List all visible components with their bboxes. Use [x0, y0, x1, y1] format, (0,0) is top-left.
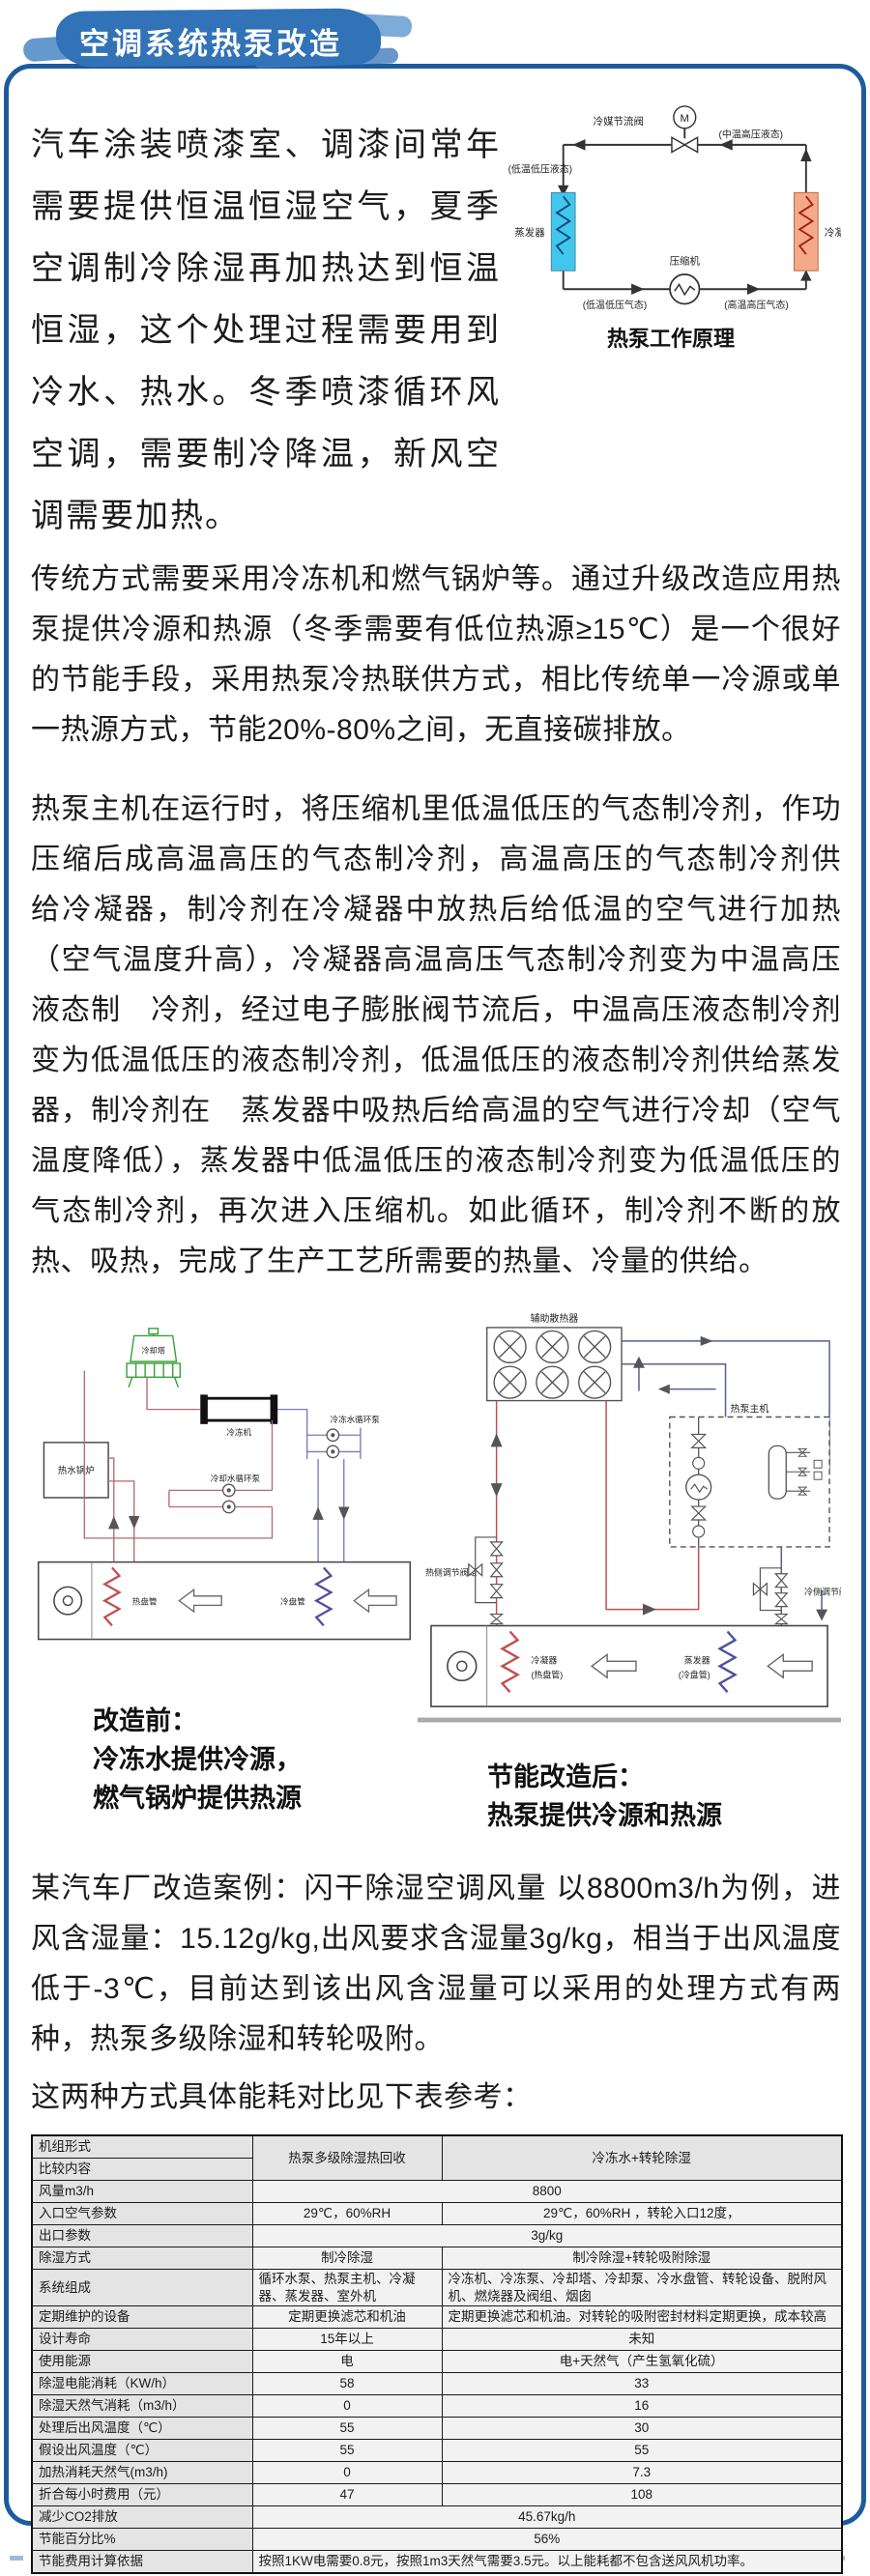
heat-pump-unit-label: 热泵主机: [731, 1403, 769, 1416]
compressor-icon: [670, 274, 699, 303]
before-retrofit-block: 冷却塔 热水锅炉 冷冻机: [31, 1306, 418, 1818]
chilled-pump-label: 冷冻水循环泵: [331, 1414, 381, 1424]
high-gas-label: (高温高压气态): [724, 299, 788, 311]
paragraph-case-study: 某汽车厂改造案例：闪干除湿空调风量 以8800m3/h为例，进风含湿量：15.1…: [31, 1864, 841, 2065]
paragraph-traditional: 传统方式需要采用冷冻机和燃气锅炉等。通过升级改造应用热泵提供冷源和热源（冬季需要…: [31, 555, 841, 756]
paragraph-table-intro: 这两种方式具体能耗对比见下表参考：: [31, 2073, 841, 2123]
before-caption: 改造前： 冷冻水提供冷源， 燃气锅炉提供热源: [93, 1702, 418, 1818]
after-retrofit-diagram: 辅助散热器: [418, 1306, 841, 1739]
chilled-water-pipes: [277, 1410, 361, 1562]
table-row: 入口空气参数29℃，60%RH29℃，60%RH ，转轮入口12度，: [32, 2203, 842, 2225]
compressor-label: 压缩机: [670, 255, 701, 268]
table-row: 出口参数3g/kg: [32, 2225, 842, 2247]
table-row: 系统组成循环水泵、热泵主机、冷凝器、蒸发器、室外机冷冻机、冷冻泵、冷却塔、冷却泵…: [32, 2270, 842, 2306]
header-col2: 冷冻水+转轮除湿: [442, 2135, 842, 2181]
heat-pump-unit-icon: [670, 1417, 829, 1547]
table-row: 除湿方式制冷除湿制冷除湿+转轮吸附除湿: [32, 2247, 842, 2270]
table-row: 加热消耗天然气(m3/h)07.3: [32, 2462, 842, 2484]
table-row: 假设出风温度（℃）5555: [32, 2440, 842, 2462]
heat-pump-principle-diagram: M 冷媒节流阀 (中温高压液态) (低温低压液态) 蒸发器 冷凝器 压缩机 (低…: [501, 100, 841, 317]
cooling-tower-label: 冷却塔: [142, 1346, 165, 1356]
table-row: 定期维护的设备定期更换滤芯和机油定期更换滤芯和机油。对转轮的吸附密封材料定期更换…: [32, 2306, 842, 2329]
cooling-pump-label: 冷却水循环泵: [211, 1473, 261, 1483]
article-content: 汽车涂装喷漆室、调漆间常年需要提供恒温恒湿空气，夏季空调制冷除湿再加热达到恒温恒…: [31, 97, 841, 2574]
flow-arrows: [558, 139, 812, 295]
aux-radiator-label: 辅助散热器: [531, 1312, 579, 1325]
evaporator-coil-label2: (冷盘管): [679, 1669, 710, 1679]
table-row: 节能百分比%56%: [32, 2529, 842, 2551]
table-row: 减少CO2排放45.67kg/h: [32, 2506, 842, 2529]
header-col1: 热泵多级除湿热回收: [252, 2135, 442, 2181]
table-row: 折合每小时费用（元）47108: [32, 2484, 842, 2506]
cold-valve-group-label: 冷侧调节阀组: [804, 1587, 841, 1597]
table-row: 除湿天然气消耗（m3/h）016: [32, 2395, 842, 2418]
low-gas-label: (低温低压气态): [583, 299, 647, 311]
paragraph-intro: 汽车涂装喷漆室、调漆间常年需要提供恒温恒湿空气，夏季空调制冷除湿再加热达到恒温恒…: [31, 114, 501, 547]
paragraph-cycle: 热泵主机在运行时，将压缩机里低温低压的气态制冷剂，作功压缩后成高温高压的气态制冷…: [31, 785, 841, 1287]
table-row: 处理后出风温度（℃）5530: [32, 2418, 842, 2440]
evaporator-icon: [551, 192, 575, 271]
motor-label: M: [681, 113, 690, 125]
evaporator-coil-label1: 蒸发器: [684, 1654, 710, 1665]
table-row: 风量m3/h8800: [32, 2181, 842, 2203]
table-row: 除湿电能消耗（KW/h）5833: [32, 2373, 842, 2395]
condenser-icon: [794, 192, 818, 271]
intro-section: 汽车涂装喷漆室、调漆间常年需要提供恒温恒湿空气，夏季空调制冷除湿再加热达到恒温恒…: [31, 97, 841, 547]
principle-diagram-block: M 冷媒节流阀 (中温高压液态) (低温低压液态) 蒸发器 冷凝器 压缩机 (低…: [501, 97, 841, 547]
pump-icons: [223, 1429, 339, 1513]
principle-diagram-caption: 热泵工作原理: [501, 322, 841, 353]
table-row: 设计寿命15年以上未知: [32, 2329, 842, 2351]
header-compare-content: 比较内容: [32, 2159, 252, 2181]
page-title: 空调系统热泵改造: [79, 19, 342, 63]
chiller-label: 冷冻机: [226, 1426, 251, 1437]
low-liquid-label: (低温低压液态): [508, 162, 572, 175]
cold-coil-label: 冷盘管: [280, 1595, 305, 1606]
hot-coil-label: 热盘管: [132, 1595, 158, 1606]
condenser-coil-label2: (热盘管): [531, 1669, 563, 1679]
table-row: 节能费用计算依据按照1KW电需要0.8元，按照1m3天然气需要3.5元。以上能耗…: [32, 2551, 842, 2574]
after-caption: 节能改造后： 热泵提供冷源和热源: [487, 1758, 841, 1835]
evaporator-label: 蒸发器: [514, 226, 545, 239]
chiller-icon: [200, 1394, 277, 1423]
cooling-tower-icon: [127, 1329, 180, 1388]
throttle-valve-icon: [672, 137, 698, 152]
energy-comparison-table: 机组形式 热泵多级除湿热回收 冷冻水+转轮除湿 比较内容 风量m3/h8800 …: [31, 2134, 843, 2574]
header-unit-type: 机组形式: [32, 2135, 252, 2159]
throttle-valve-label: 冷媒节流阀: [594, 115, 644, 128]
boiler-label: 热水锅炉: [58, 1465, 95, 1476]
condenser-coil-label1: 冷凝器: [531, 1654, 557, 1665]
before-retrofit-diagram: 冷却塔 热水锅炉 冷冻机: [31, 1306, 418, 1670]
aux-radiator-icon: [487, 1328, 622, 1401]
after-retrofit-block: 辅助散热器: [418, 1306, 841, 1835]
hot-water-pipes: [497, 1401, 699, 1626]
mid-liquid-label: (中温高压液态): [719, 128, 783, 140]
condenser-label: 冷凝器: [825, 226, 841, 239]
ahu-unit: [39, 1562, 411, 1640]
retrofit-diagrams-section: 冷却塔 热水锅炉 冷冻机: [31, 1306, 841, 1835]
ahu-unit: [431, 1615, 827, 1707]
table-header-row: 机组形式 热泵多级除湿热回收 冷冻水+转轮除湿: [32, 2135, 842, 2159]
title-badge: 空调系统热泵改造: [21, 6, 427, 73]
table-row: 使用能源电电+天然气（产生氢氧化硫）: [32, 2351, 842, 2373]
hot-valve-group-icon: [469, 1537, 503, 1603]
